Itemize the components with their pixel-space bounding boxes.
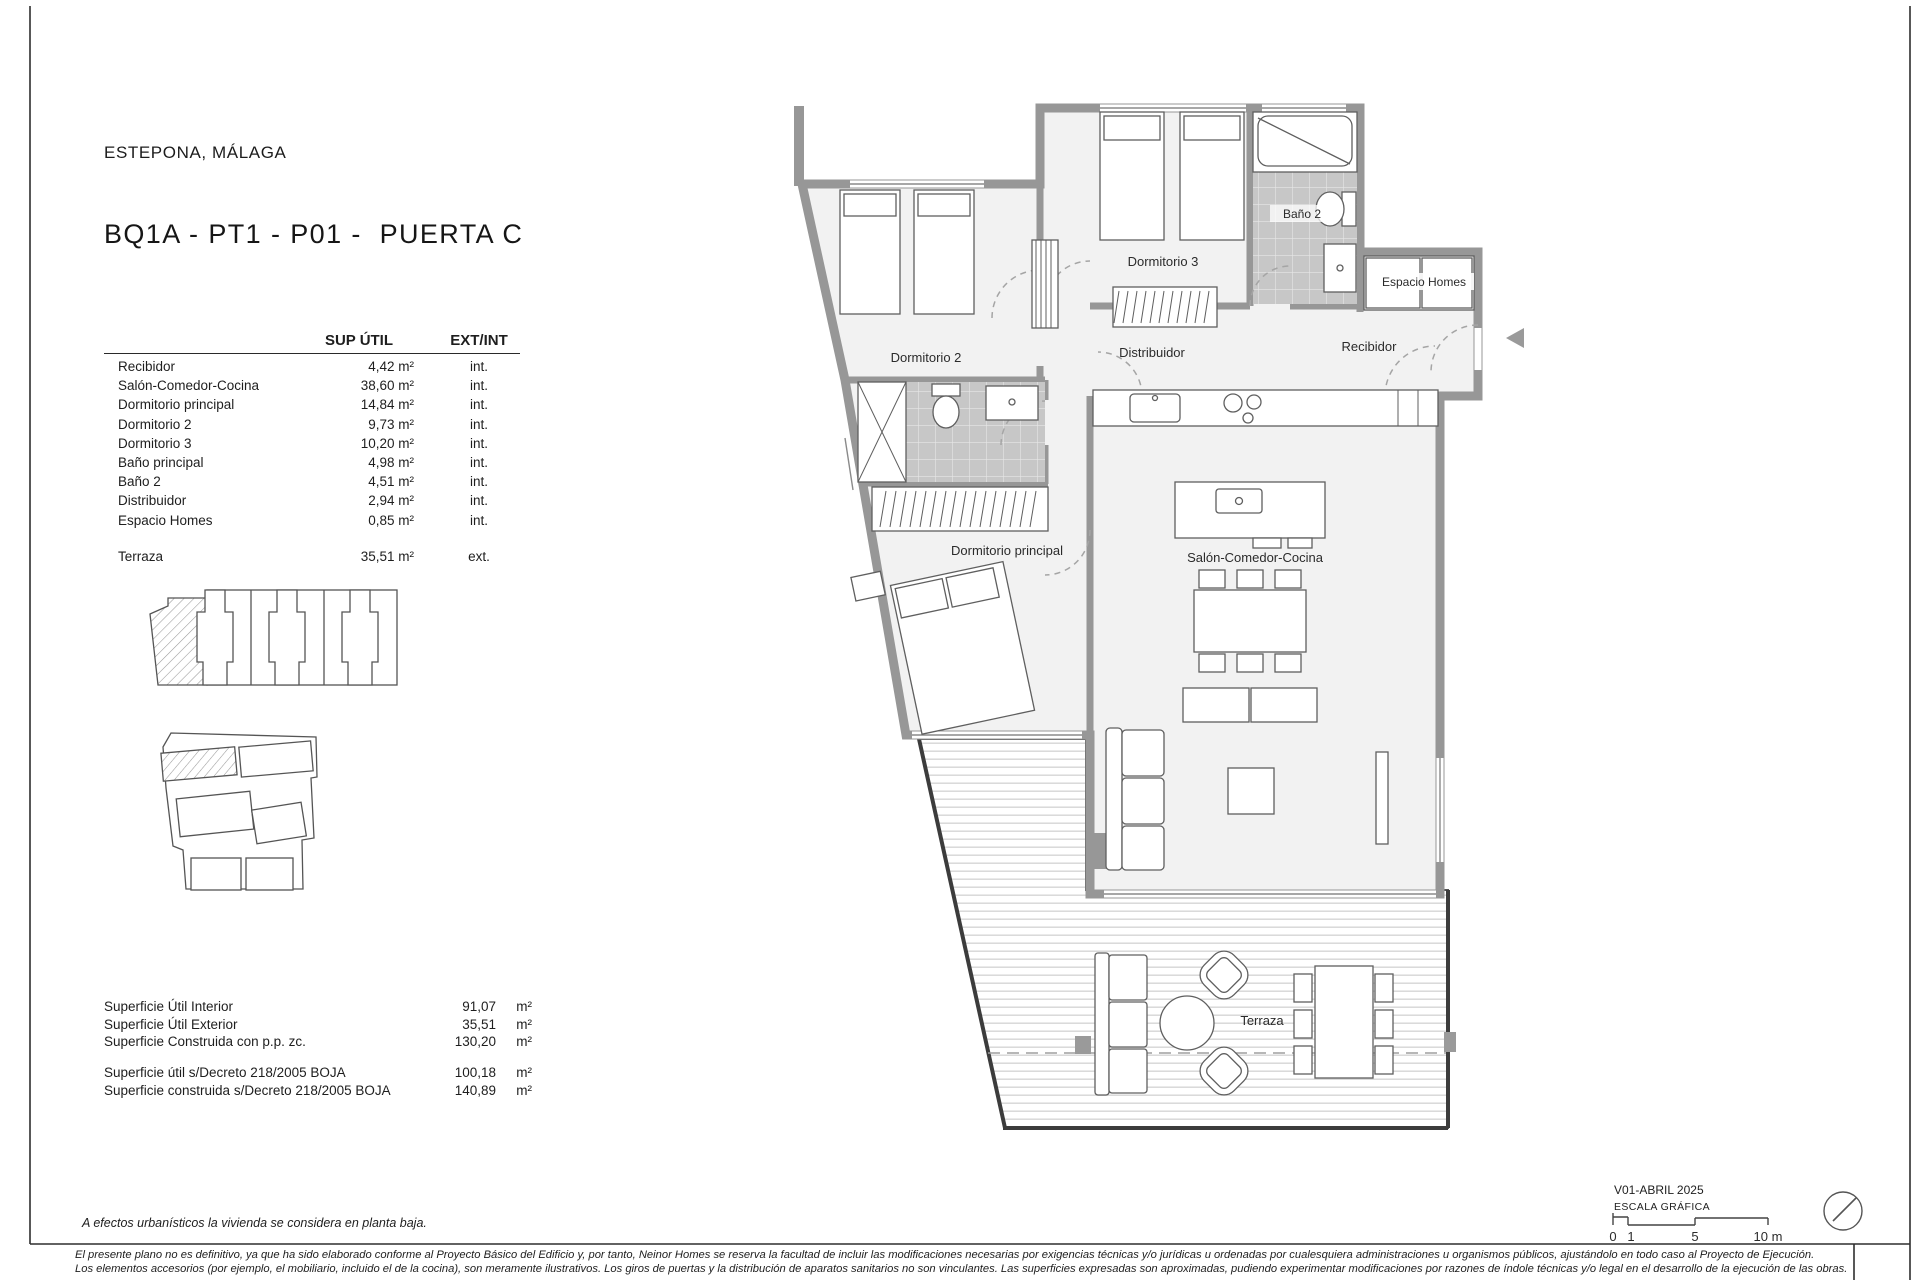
area-table-header: SUP ÚTIL EXT/INT <box>104 330 544 350</box>
summary-row: Superficie útil s/Decreto 218/2005 BOJA1… <box>104 1064 544 1082</box>
row-label: Distribuidor <box>104 493 304 508</box>
plan-sheet: Dormitorio 3 Baño 2 Espacio Homes Recibi… <box>0 0 1920 1280</box>
disclaimer-line2: Los elementos accesorios (por ejemplo, e… <box>75 1263 1847 1275</box>
row-sup: 38,60 m² <box>304 378 414 393</box>
summary-value: 140,89 <box>420 1083 496 1098</box>
row-type: int. <box>414 417 544 432</box>
summary-unit: m² <box>496 999 532 1014</box>
summary-unit: m² <box>496 1034 532 1049</box>
row-type: int. <box>414 436 544 451</box>
summary-unit: m² <box>496 1017 532 1032</box>
disclaimer-line1: El presente plano no es definitivo, ya q… <box>75 1249 1814 1261</box>
building-key-map <box>150 590 397 685</box>
north-indicator-icon <box>1824 1192 1862 1230</box>
summary-value: 35,51 <box>420 1017 496 1032</box>
area-row: Espacio Homes0,85 m²int. <box>104 511 544 530</box>
row-sup: 4,51 m² <box>304 474 414 489</box>
row-type: int. <box>414 359 544 374</box>
row-sup: 9,73 m² <box>304 417 414 432</box>
room-label-dormitorio3: Dormitorio 3 <box>1128 254 1199 269</box>
scale-tick-0: 0 <box>1609 1229 1616 1244</box>
row-sup: 2,94 m² <box>304 493 414 508</box>
scale-tick-5: 5 <box>1691 1229 1698 1244</box>
row-sup: 14,84 m² <box>304 397 414 412</box>
summary-value: 91,07 <box>420 999 496 1014</box>
area-row: Baño principal4,98 m²int. <box>104 453 544 472</box>
location-label: ESTEPONA, MÁLAGA <box>104 143 286 163</box>
row-type: int. <box>414 493 544 508</box>
room-label-espacio-homes: Espacio Homes <box>1382 275 1466 289</box>
area-row: Baño 24,51 m²int. <box>104 472 544 491</box>
room-label-dormitorio2: Dormitorio 2 <box>891 350 962 365</box>
version-label: V01-ABRIL 2025 <box>1614 1183 1704 1197</box>
scale-tick-1: 1 <box>1627 1229 1634 1244</box>
scale-bar: 0 1 5 10 m <box>1609 1213 1782 1244</box>
row-sup: 10,20 m² <box>304 436 414 451</box>
area-row: Distribuidor2,94 m²int. <box>104 491 544 510</box>
row-label: Baño principal <box>104 455 304 470</box>
scale-title: ESCALA GRÁFICA <box>1614 1201 1710 1213</box>
row-label: Terraza <box>104 549 304 564</box>
summary-label: Superficie útil s/Decreto 218/2005 BOJA <box>104 1065 420 1080</box>
summary-value: 100,18 <box>420 1065 496 1080</box>
summary-label: Superficie Útil Exterior <box>104 1017 420 1032</box>
summary-label: Superficie Útil Interior <box>104 999 420 1014</box>
row-type: ext. <box>414 549 544 564</box>
row-label: Dormitorio principal <box>104 397 304 412</box>
area-row: Dormitorio principal14,84 m²int. <box>104 395 544 414</box>
row-label: Espacio Homes <box>104 513 304 528</box>
room-label-distribuidor: Distribuidor <box>1119 345 1185 360</box>
row-label: Salón-Comedor-Cocina <box>104 378 304 393</box>
summary-row: Superficie construida s/Decreto 218/2005… <box>104 1081 544 1099</box>
area-row: Dormitorio 310,20 m²int. <box>104 434 544 453</box>
table-rule <box>104 353 520 354</box>
surface-summary: Superficie Útil Interior91,07m² Superfic… <box>104 998 544 1099</box>
area-row-terraza: Terraza35,51 m²ext. <box>104 547 544 566</box>
summary-row: Superficie Útil Exterior35,51m² <box>104 1016 544 1034</box>
summary-value: 130,20 <box>420 1034 496 1049</box>
entrance-arrow-icon <box>1506 328 1524 348</box>
area-row: Dormitorio 29,73 m²int. <box>104 415 544 434</box>
row-label: Recibidor <box>104 359 304 374</box>
row-type: int. <box>414 397 544 412</box>
col-header-ext-int: EXT/INT <box>414 332 544 349</box>
summary-label: Superficie Construida con p.p. zc. <box>104 1034 420 1049</box>
summary-row: Superficie Construida con p.p. zc.130,20… <box>104 1033 544 1051</box>
room-label-dormitorio-principal: Dormitorio principal <box>951 543 1063 558</box>
row-label: Baño 2 <box>104 474 304 489</box>
summary-unit: m² <box>496 1065 532 1080</box>
room-label-recibidor: Recibidor <box>1342 339 1398 354</box>
room-label-bano2: Baño 2 <box>1283 207 1321 221</box>
row-sup: 4,42 m² <box>304 359 414 374</box>
room-label-terraza: Terraza <box>1240 1013 1284 1028</box>
summary-unit: m² <box>496 1083 532 1098</box>
row-label: Dormitorio 2 <box>104 417 304 432</box>
row-type: int. <box>414 378 544 393</box>
summary-label: Superficie construida s/Decreto 218/2005… <box>104 1083 420 1098</box>
room-label-salon: Salón-Comedor-Cocina <box>1187 550 1324 565</box>
summary-row: Superficie Útil Interior91,07m² <box>104 998 544 1016</box>
urban-note: A efectos urbanísticos la vivienda se co… <box>82 1216 427 1230</box>
area-row: Recibidor4,42 m²int. <box>104 357 544 376</box>
row-label: Dormitorio 3 <box>104 436 304 451</box>
row-sup: 0,85 m² <box>304 513 414 528</box>
row-type: int. <box>414 513 544 528</box>
col-header-sup-util: SUP ÚTIL <box>304 332 414 349</box>
site-key-map <box>161 733 317 890</box>
scale-tick-10: 10 m <box>1754 1229 1783 1244</box>
row-type: int. <box>414 474 544 489</box>
row-sup: 4,98 m² <box>304 455 414 470</box>
area-table: SUP ÚTIL EXT/INT Recibidor4,42 m²int. Sa… <box>104 330 544 566</box>
area-row: Salón-Comedor-Cocina38,60 m²int. <box>104 376 544 395</box>
row-type: int. <box>414 455 544 470</box>
row-sup: 35,51 m² <box>304 549 414 564</box>
page-title: BQ1A - PT1 - P01 - PUERTA C <box>104 219 523 250</box>
